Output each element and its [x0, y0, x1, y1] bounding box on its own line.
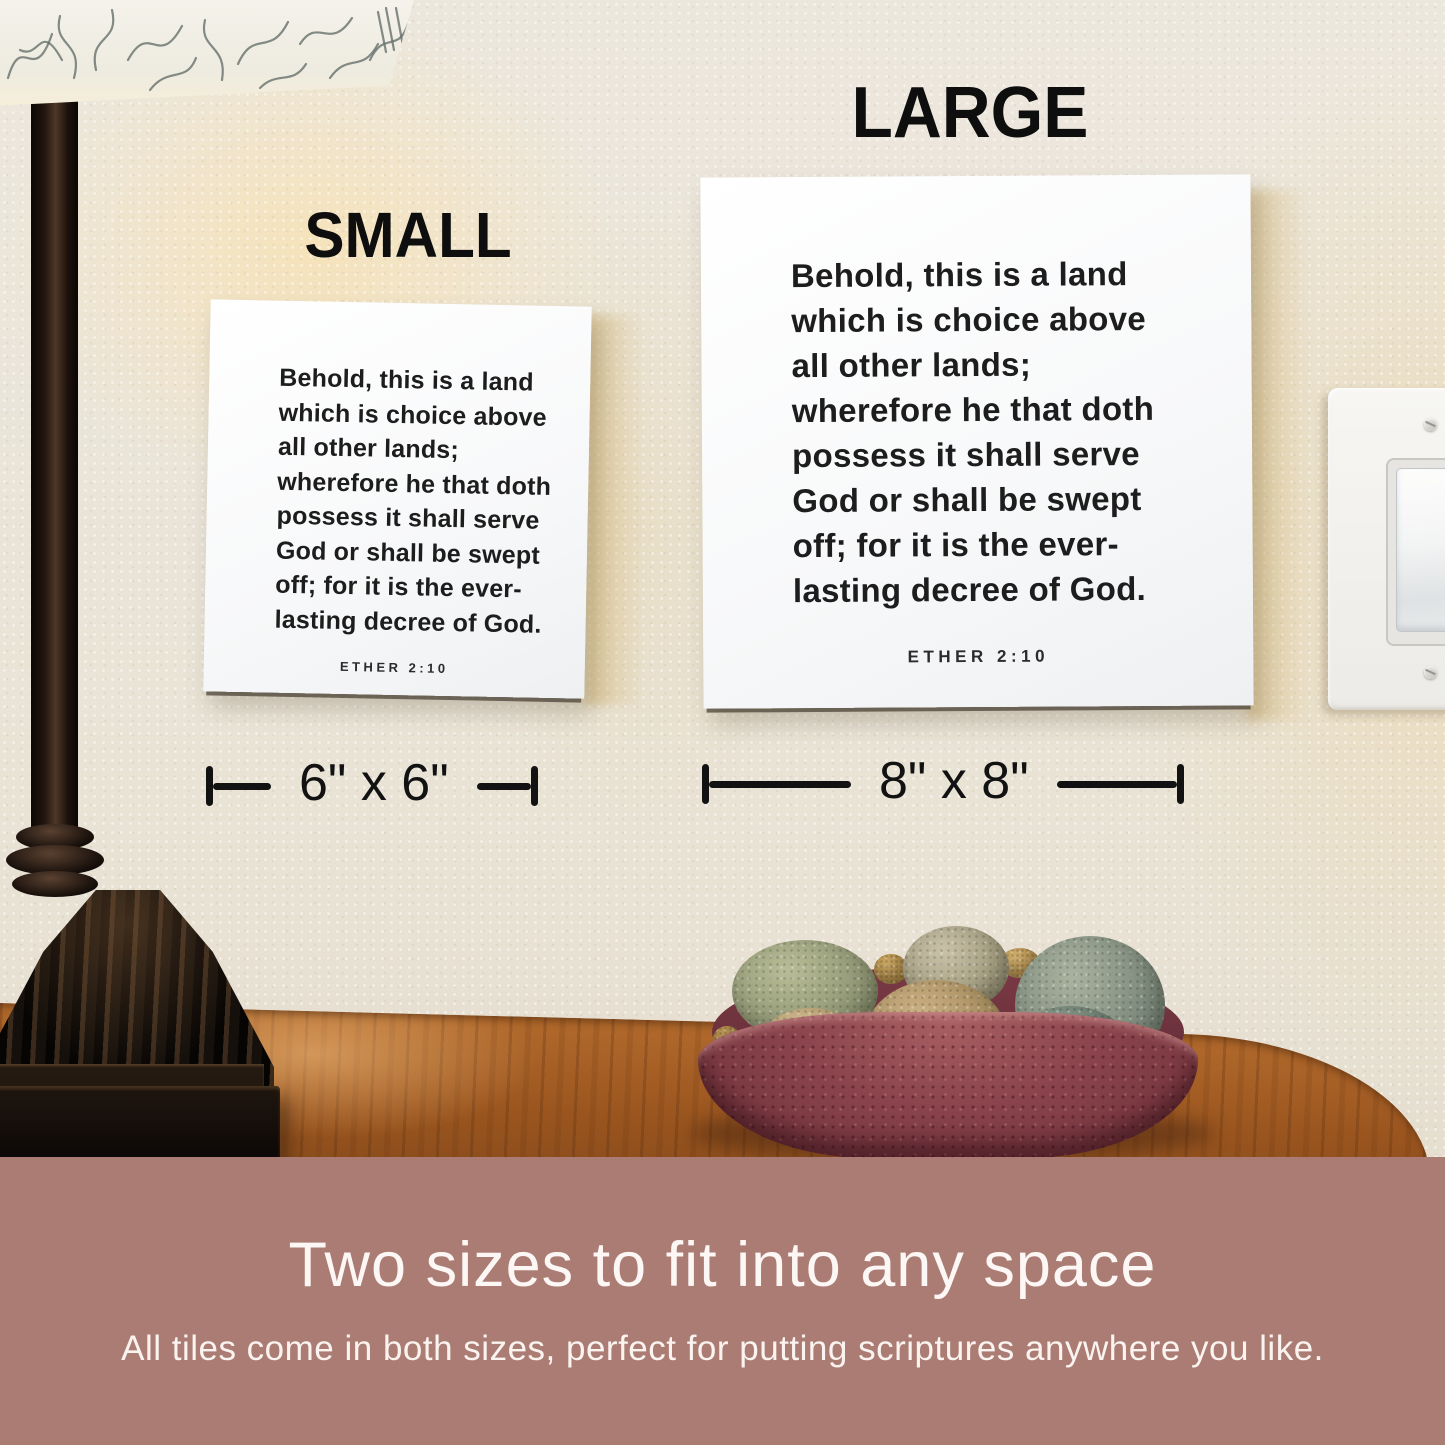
dimension-line [1057, 781, 1177, 788]
scripture-reference: ETHER 2:10 [703, 645, 1253, 668]
dimension-endcap [206, 766, 213, 806]
dimension-line [709, 781, 851, 788]
dimension-endcap [1177, 764, 1184, 804]
screw-icon [1424, 418, 1437, 431]
ceramic-bowl [698, 1012, 1198, 1158]
product-photo-scene: SMALL LARGE Behold, this is a land which… [0, 0, 1445, 1445]
banner-headline: Two sizes to fit into any space [0, 1229, 1445, 1301]
scripture-verse: Behold, this is a land which is choice a… [700, 174, 1253, 613]
light-switch-recess [1386, 458, 1445, 646]
banner-subtext: All tiles come in both sizes, perfect fo… [0, 1329, 1445, 1369]
dimension-line [477, 783, 531, 790]
light-switch-rocker [1396, 468, 1445, 632]
lamp-pole [31, 88, 78, 854]
large-size-label: LARGE [782, 72, 1158, 154]
dimension-annotation-large: 8" x 8" [702, 754, 1184, 814]
marketing-banner: Two sizes to fit into any space All tile… [0, 1157, 1445, 1445]
dimension-text-large: 8" x 8" [851, 751, 1057, 811]
large-tile-wall-shadow [1247, 190, 1309, 720]
dimension-text-small: 6" x 6" [271, 753, 477, 813]
lamp-collar [12, 871, 98, 897]
lamp-base-plinth [0, 1086, 280, 1164]
scripture-verse: Behold, this is a land which is choice a… [204, 299, 591, 642]
scripture-tile-small: Behold, this is a land which is choice a… [203, 299, 591, 698]
small-size-label: SMALL [220, 198, 596, 272]
scripture-tile-large: Behold, this is a land which is choice a… [700, 174, 1253, 708]
dimension-annotation-small: 6" x 6" [206, 756, 538, 816]
light-switch-plate [1328, 388, 1445, 710]
dimension-line [213, 783, 271, 790]
scripture-reference: ETHER 2:10 [204, 656, 585, 678]
small-tile-wall-shadow [584, 315, 644, 705]
dimension-endcap [702, 764, 709, 804]
dimension-endcap [531, 766, 538, 806]
screw-icon [1424, 666, 1437, 679]
